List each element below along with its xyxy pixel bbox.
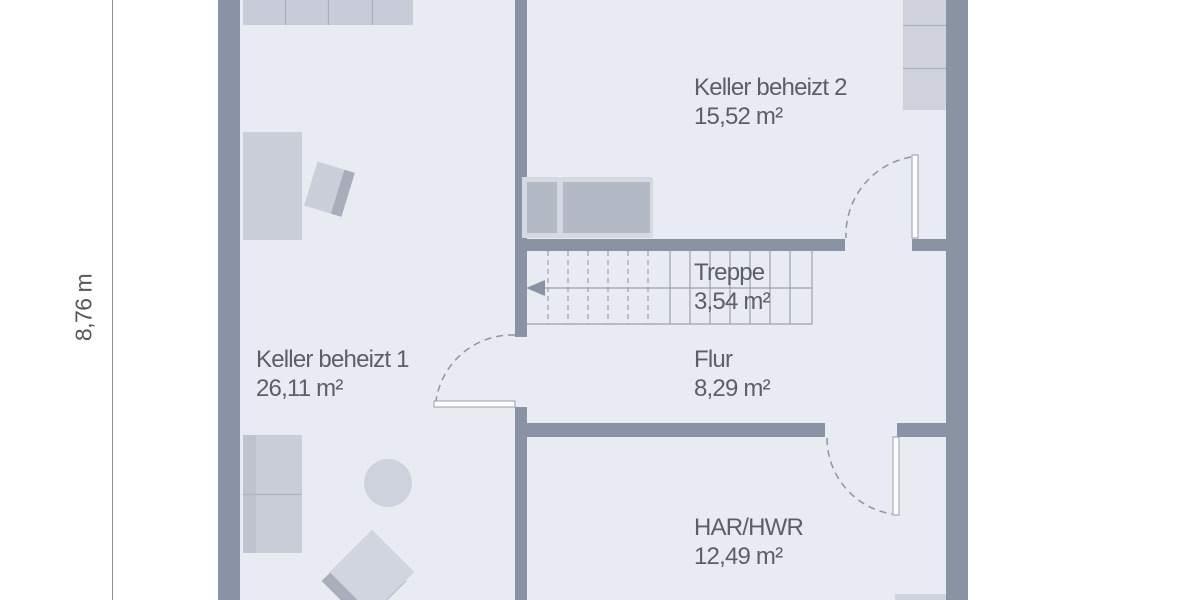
room-name: Flur [694,345,770,374]
floorplan-canvas: Keller beheizt 2 15,52 m² Treppe 3,54 m²… [0,0,1200,600]
wall-keller2-south-right [912,239,946,251]
bed [522,177,653,238]
room-area: 15,52 m² [694,102,847,131]
room-name: Keller beheizt 1 [256,345,409,374]
room-label-treppe: Treppe 3,54 m² [694,258,770,316]
room-area: 8,29 m² [694,374,770,403]
har-shelf [895,594,946,600]
room-label-keller-beheizt-2: Keller beheizt 2 15,52 m² [694,73,847,131]
cabinet-column [903,0,946,110]
wall-exterior-left [218,0,240,600]
shelf-row [243,0,413,25]
room-label-flur: Flur 8,29 m² [694,345,770,403]
wall-keller2-south-left [515,239,845,251]
wall-har-north-right [897,423,946,437]
room-label-keller-beheizt-1: Keller beheizt 1 26,11 m² [256,345,409,403]
couch [243,435,302,553]
room-name: Treppe [694,258,770,287]
room-name: Keller beheizt 2 [694,73,847,102]
room-area: 26,11 m² [256,374,409,403]
dimension-label: 8,76 m [71,248,98,368]
room-name: HAR/HWR [694,513,803,542]
wall-interior-vertical-upper [515,0,527,337]
room-area: 3,54 m² [694,287,770,316]
wall-exterior-right [946,0,968,600]
floorplan-drawing [0,0,1200,600]
room-label-har-hwr: HAR/HWR 12,49 m² [694,513,803,571]
wall-har-north-left [515,423,825,437]
room-area: 12,49 m² [694,542,803,571]
desk [243,132,302,240]
round-table [364,459,412,507]
